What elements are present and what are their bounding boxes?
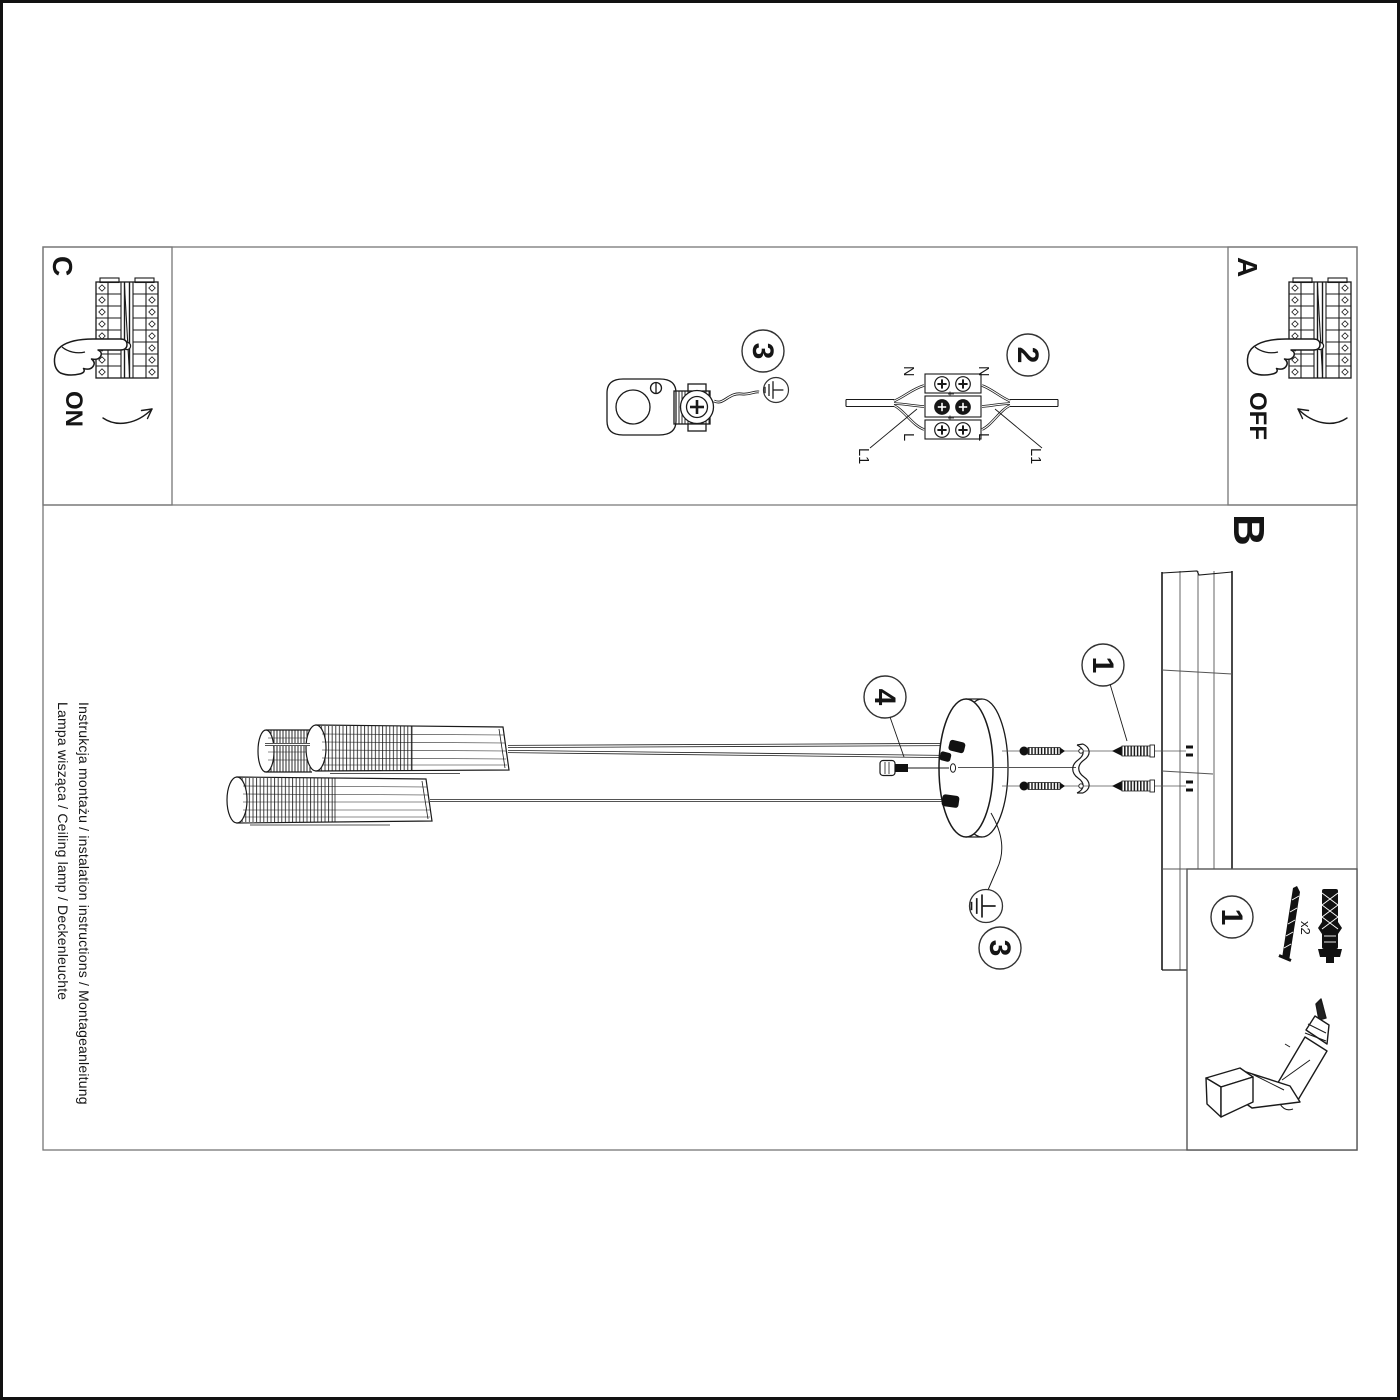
section-a-label: A xyxy=(1232,257,1263,277)
power-off-label: OFF xyxy=(1244,392,1271,440)
neutral-label-right: N xyxy=(975,366,991,376)
quantity-label: x2 xyxy=(1298,921,1313,935)
step2-number: 2 xyxy=(1011,347,1044,364)
switched-live-label-left: L1 xyxy=(855,448,871,464)
step4-number: 4 xyxy=(868,689,901,706)
step1-number-accessory: 1 xyxy=(1215,909,1248,926)
breaker-panel-icon xyxy=(96,278,158,378)
figure-frame xyxy=(43,247,1357,1150)
instruction-sheet: C ON A OFF 3 xyxy=(0,0,1400,1400)
section-b-label: B xyxy=(1224,514,1273,546)
step3-number: 3 xyxy=(746,343,779,360)
breaker-panel-icon xyxy=(1289,278,1351,378)
power-on-label: ON xyxy=(60,391,87,427)
live-label-left: L xyxy=(900,433,916,441)
section-c-label: C xyxy=(47,256,78,276)
side-title-line2: Lampa wisząca / Ceiling lamp / Deckenleu… xyxy=(55,702,71,1000)
accessory-box xyxy=(1187,869,1357,1150)
layout-frame xyxy=(43,247,1357,1150)
step1-number: 1 xyxy=(1086,657,1119,674)
terminal-block xyxy=(925,374,981,439)
instruction-drawing: C ON A OFF 3 xyxy=(0,0,1400,1400)
lamp-shade-tube-small xyxy=(258,730,312,772)
side-title-line1: Instrukcja montażu / instalation instruc… xyxy=(76,702,92,1105)
neutral-label-left: N xyxy=(900,366,916,376)
live-label-right: L xyxy=(975,433,991,441)
switched-live-label-right: L1 xyxy=(1027,448,1043,464)
step3-number-lower: 3 xyxy=(983,940,1016,957)
